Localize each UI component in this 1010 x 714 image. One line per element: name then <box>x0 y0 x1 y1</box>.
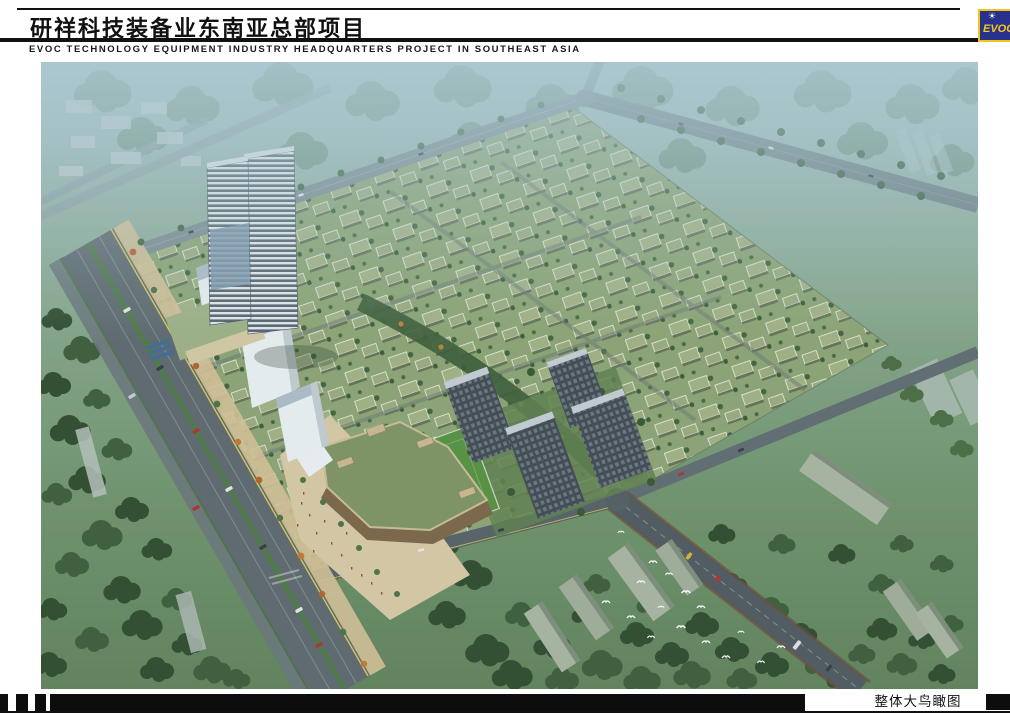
barcode-stripe <box>0 694 8 711</box>
footer-bottom-rule <box>0 711 1010 713</box>
presentation-board: 研祥科技装备业东南亚总部项目 EVOC TECHNOLOGY EQUIPMENT… <box>0 0 1010 714</box>
header-divider-rule <box>0 38 1010 42</box>
figure-caption: 整体大鸟瞰图 <box>848 693 988 711</box>
aerial-rendering-svg <box>41 62 978 689</box>
blue-tint <box>41 62 978 689</box>
sunburst-icon: ☀ <box>988 12 996 21</box>
header-top-rule <box>17 8 960 10</box>
evoc-logo: ☀ EVOC <box>978 9 1010 42</box>
barcode-stripe <box>35 694 46 711</box>
footer-bar <box>50 694 805 711</box>
aerial-rendering-image <box>41 62 978 689</box>
barcode-stripe <box>16 694 28 711</box>
logo-text: EVOC <box>983 23 1010 35</box>
footer-end-block <box>986 694 1010 710</box>
project-title-en: EVOC TECHNOLOGY EQUIPMENT INDUSTRY HEADQ… <box>29 44 581 55</box>
